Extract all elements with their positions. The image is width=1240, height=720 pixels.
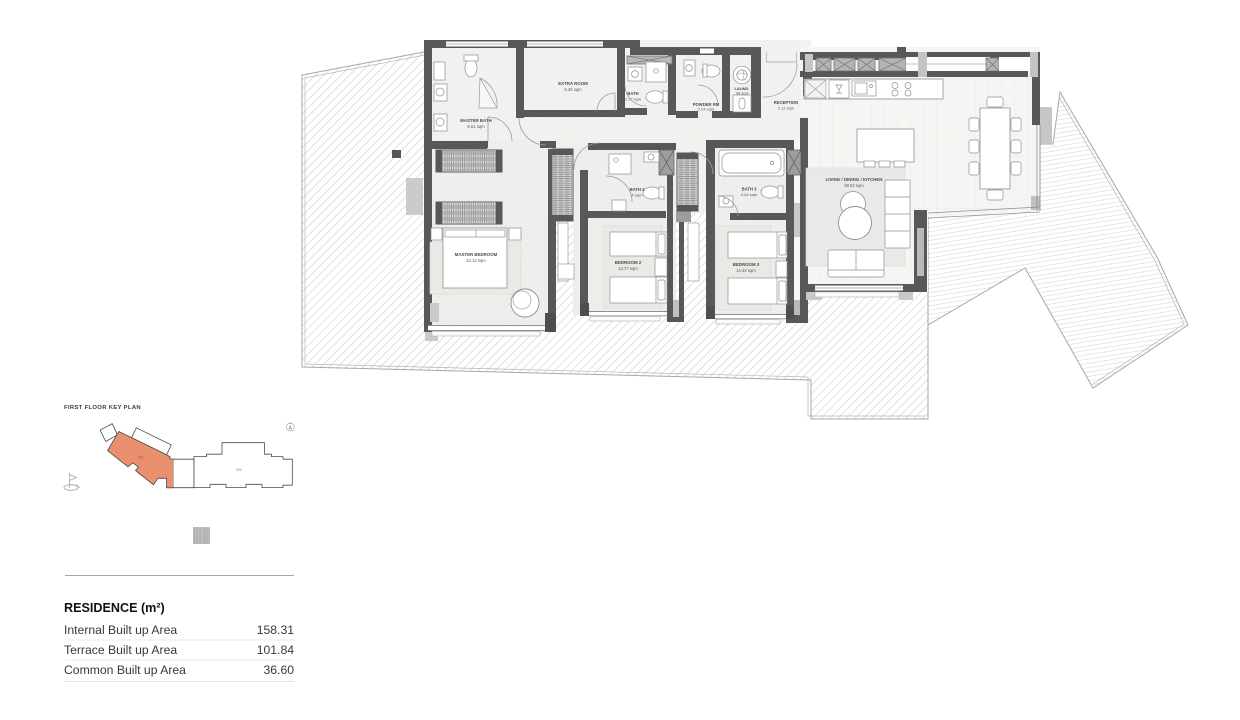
svg-text:Internal Built up Area: Internal Built up Area [64,623,177,637]
svg-text:EXTRA ROOM: EXTRA ROOM [558,81,588,86]
svg-text:MASTER BATH: MASTER BATH [460,118,492,123]
svg-text:2.27 sqm: 2.27 sqm [625,97,642,102]
svg-text:FIRST FLOOR KEY PLAN: FIRST FLOOR KEY PLAN [64,405,141,411]
svg-text:22.12 sqm: 22.12 sqm [466,258,486,263]
svg-text:14.77 sqm: 14.77 sqm [618,266,638,271]
svg-text:BATH 3: BATH 3 [742,187,757,192]
svg-text:Terrace Built up Area: Terrace Built up Area [64,643,177,657]
svg-text:BATH: BATH [627,91,638,96]
svg-text:201: 201 [138,456,144,460]
svg-text:5.26 sqm: 5.26 sqm [564,87,582,92]
svg-text:48.52 sqm: 48.52 sqm [844,183,864,188]
svg-text:LIVING / DINING / KITCHEN: LIVING / DINING / KITCHEN [826,177,883,182]
svg-text:14.42 sqm: 14.42 sqm [736,268,756,273]
svg-text:2.24 sqm: 2.24 sqm [698,107,715,112]
svg-text:4.04 sqm: 4.04 sqm [741,192,758,197]
svg-text:RESIDENCE (m²): RESIDENCE (m²) [64,601,165,615]
svg-text:4 sqm: 4 sqm [632,193,644,198]
svg-text:101.84: 101.84 [257,643,294,657]
svg-text:158.31: 158.31 [257,623,294,637]
svg-text:2.12 sqm: 2.12 sqm [778,106,795,111]
svg-text:6.51 sqm: 6.51 sqm [467,124,485,129]
svg-text:LAUND.: LAUND. [734,86,749,91]
svg-text:202: 202 [236,468,242,472]
svg-text:RECEPTION: RECEPTION [774,100,798,105]
svg-text:BEDROOM 2: BEDROOM 2 [615,260,642,265]
svg-text:MASTER BEDROOM: MASTER BEDROOM [455,252,498,257]
svg-text:BATH 2: BATH 2 [630,187,645,192]
svg-text:.88 sqm: .88 sqm [735,92,749,96]
svg-text:36.60: 36.60 [264,663,295,677]
svg-text:BEDROOM 3: BEDROOM 3 [733,262,760,267]
svg-text:Common Built up Area: Common Built up Area [64,663,186,677]
